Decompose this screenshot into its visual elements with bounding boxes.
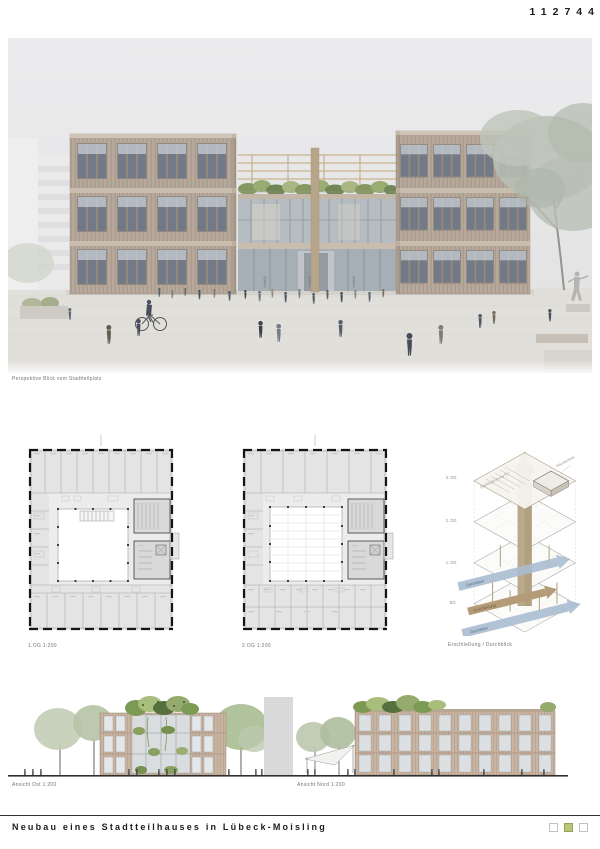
ground-line [293,775,568,777]
level-label-2og: 2. OG [446,518,457,523]
axon-caption: Erschließung / Durchblick [448,642,512,648]
legend-square-2-active [564,823,573,832]
board-title: Neubau eines Stadtteilhauses in Lübeck-M… [12,822,327,832]
elevation-north: Ansicht Nord 1:200 [293,695,568,787]
floor-plan-1og-drawing [22,433,180,633]
footer-divider [0,815,600,816]
project-number: 112744 [530,6,600,18]
building-north [355,709,555,775]
level-label-1og: 1. OG [446,560,457,565]
perspective-caption: Perspektive Blick vom Stadtteilplatz [12,376,102,382]
floor-plan-2og: 2.OG 1:200 [236,433,394,653]
elevation-east-label: Ansicht Ost 1:200 [12,782,57,788]
competition-board: 112744 [0,0,600,849]
plan1-label: 1.OG 1:200 [28,643,57,649]
legend-squares [549,823,588,832]
axonometric-diagram: Durchblick Erschließung Durchblick 3. OG… [430,436,598,656]
roof-garden-east [125,696,199,716]
floor-plan-1og: 1.OG 1:200 [22,433,180,653]
floor-plan-2og-drawing [236,433,394,633]
legend-square-1 [549,823,558,832]
level-label-roof: 3. OG [446,475,457,480]
elevation-east: Ansicht Ost 1:200 [8,695,293,787]
roof-annotation-right: Haustechnik [556,455,576,468]
perspective-rendering: Perspektive Blick vom Stadtteilplatz [8,38,592,373]
perspective-art [8,38,592,373]
level-label-eg: EG [450,600,456,605]
elevation-north-drawing [293,695,568,787]
axonometric-drawing: Durchblick Erschließung Durchblick 3. OG… [430,436,598,636]
elevation-north-label: Ansicht Nord 1:200 [297,782,345,788]
legend-square-3 [579,823,588,832]
plan2-label: 2.OG 1:200 [242,643,271,649]
elevation-east-drawing [8,695,293,787]
ground-line [8,775,293,777]
adjacent-tower [264,697,293,775]
building-east [100,713,226,775]
